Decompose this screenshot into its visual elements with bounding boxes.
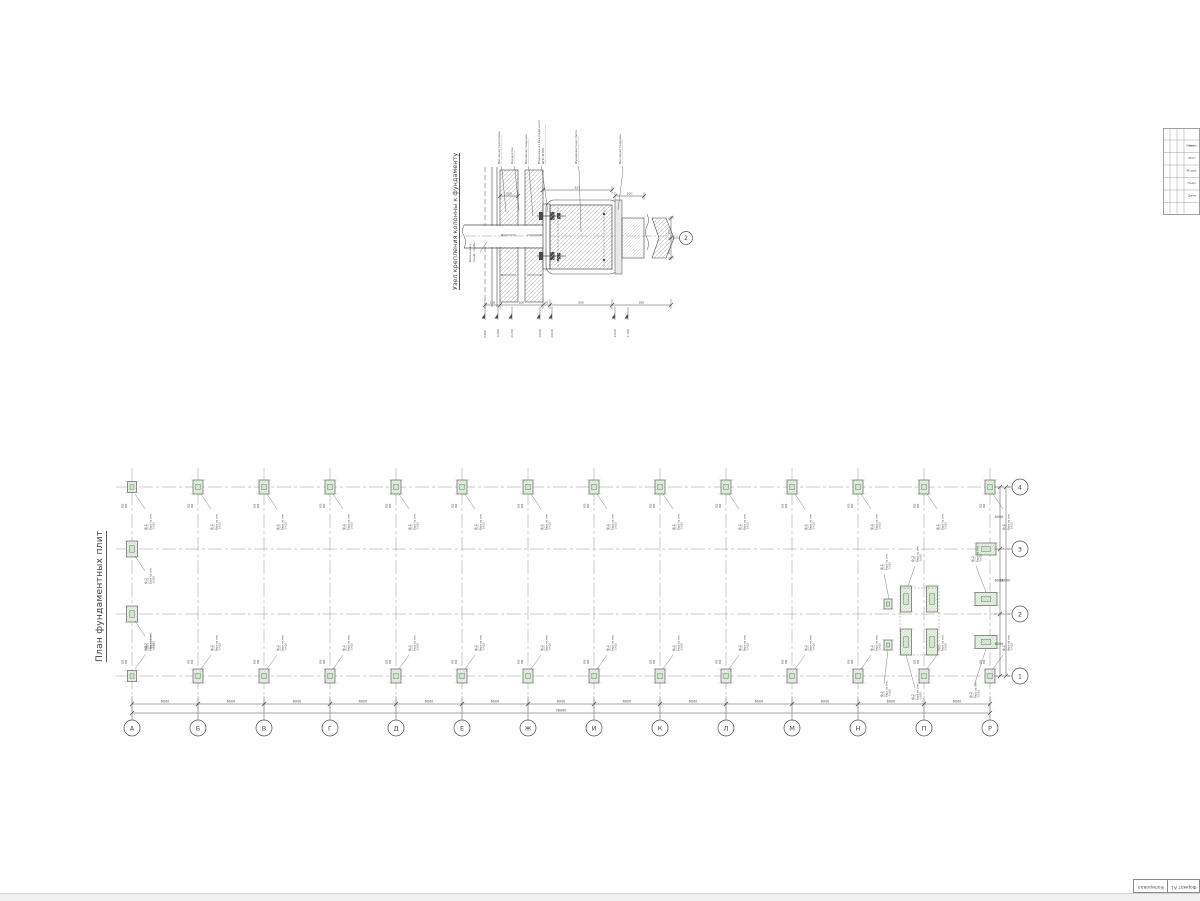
pad-level: -0.620 bbox=[888, 689, 892, 697]
pad-level: -0.620 bbox=[919, 554, 923, 562]
foundation-pad-core bbox=[328, 484, 332, 490]
axis-bubble-label: Б bbox=[196, 724, 200, 732]
axis-bubble-label: Ж bbox=[524, 724, 531, 732]
axis-bubble-label: 1 bbox=[1018, 672, 1022, 680]
dim-text: 6000 bbox=[689, 699, 698, 703]
pad-level: -0.620 bbox=[746, 643, 750, 651]
pad-dim: 950 bbox=[587, 659, 590, 664]
dim-text: 100 bbox=[627, 191, 633, 195]
pad-dim: 950 bbox=[455, 659, 458, 664]
foundation-pad-core bbox=[988, 673, 992, 679]
arrow-dot bbox=[540, 234, 542, 236]
pad-mark: Ф-1 bbox=[474, 645, 478, 651]
leader-line bbox=[795, 494, 805, 509]
foundation-pad-core bbox=[930, 637, 935, 647]
foundation-pad-core bbox=[526, 673, 530, 679]
foundation-pad-core bbox=[930, 594, 935, 604]
pad-level: -0.620 bbox=[1010, 522, 1014, 530]
anchor-point bbox=[557, 213, 559, 215]
pad-mark: Ф-1 bbox=[474, 524, 478, 530]
pad-dim: 950 bbox=[389, 659, 392, 664]
strip-row-label: Лист bbox=[1188, 156, 1196, 160]
pad-mark: Ф-1 bbox=[936, 524, 940, 530]
pad-level: -0.620 bbox=[919, 692, 923, 700]
pad-mark: Ф-1 bbox=[342, 524, 346, 530]
callout-label: Кондуктор bbox=[510, 147, 514, 164]
leader-line bbox=[531, 494, 541, 509]
dim-text: 6000 bbox=[425, 699, 434, 703]
axis-bubble-label: П bbox=[922, 724, 927, 732]
anchor-point bbox=[603, 259, 605, 261]
pad-level: -0.620 bbox=[812, 522, 816, 530]
pad-mark: Ф-1 bbox=[540, 524, 544, 530]
leader-line bbox=[993, 655, 1003, 669]
axis-bubble-label: В bbox=[262, 724, 266, 732]
foundation-pad-core bbox=[790, 673, 794, 679]
foundation-pad-core bbox=[394, 484, 398, 490]
dim-text: 6000 bbox=[755, 699, 764, 703]
pad-mark: Ф-1 bbox=[408, 645, 412, 651]
dim-text: 600 bbox=[578, 300, 584, 304]
dim-text: 6000 bbox=[995, 515, 1004, 519]
foundation-pad-core bbox=[981, 639, 991, 644]
arrow-dot bbox=[501, 234, 503, 236]
pad-level: -0.620 bbox=[350, 643, 354, 651]
arrow-dot bbox=[540, 274, 542, 276]
axis-bubble-label: Д bbox=[393, 724, 398, 732]
foundation-pad-core bbox=[981, 596, 991, 601]
strip-row-label: Подп. bbox=[1187, 181, 1196, 185]
leader-line bbox=[333, 494, 343, 509]
pad-level: -0.620 bbox=[1010, 643, 1014, 651]
dim-text: 6000 bbox=[359, 699, 368, 703]
foundation-pad-core bbox=[856, 673, 860, 679]
pad-mark: Ф-1 bbox=[738, 524, 742, 530]
pad-mark: Ф-1 bbox=[804, 645, 808, 651]
dim-text: 150 bbox=[667, 249, 671, 254]
pad-level: -0.620 bbox=[416, 643, 420, 651]
dim-text: 18000 bbox=[1000, 579, 1011, 583]
axis-bubble-label: 2 bbox=[684, 235, 688, 242]
pad-dim: 950 bbox=[587, 503, 590, 508]
leader-line bbox=[135, 494, 145, 509]
pad-mark: Ф-1 bbox=[606, 524, 610, 530]
dim-text: 150 bbox=[667, 229, 671, 234]
level-flag bbox=[537, 314, 541, 319]
leader-line bbox=[663, 655, 673, 669]
leader-line bbox=[399, 655, 409, 669]
pad-mark: Ф-1 bbox=[276, 524, 280, 530]
pad-level: -0.620 bbox=[284, 643, 288, 651]
axis-bubble-label: 3 bbox=[1018, 545, 1022, 553]
dim-text: 6000 bbox=[227, 699, 236, 703]
leader-line bbox=[861, 655, 871, 669]
pad-level: -0.620 bbox=[416, 522, 420, 530]
pad-level: -0.620 bbox=[482, 643, 486, 651]
foundation-pad-core bbox=[130, 611, 135, 617]
leader-line bbox=[135, 655, 145, 669]
leader-line bbox=[333, 655, 343, 669]
pad-dim: 950 bbox=[719, 659, 722, 664]
pad-mark: Ф-1 bbox=[1002, 524, 1006, 530]
pad-mark: Ф-1 bbox=[804, 524, 808, 530]
axis-bubble-label: 2 bbox=[1018, 610, 1022, 618]
foundation-pad-core bbox=[922, 673, 926, 679]
pad-level: -0.620 bbox=[878, 643, 882, 651]
dim-text: 78000 bbox=[556, 708, 567, 712]
foundation-plan: 950950950950Ф-1Верх на отм.-0.620Ф-1Верх… bbox=[88, 452, 1048, 762]
leader-line bbox=[927, 655, 937, 669]
drawing-sheet: Узел крепления колонны к фундаменту План… bbox=[0, 0, 1200, 893]
foundation-pad-core bbox=[196, 484, 200, 490]
arrow-dot bbox=[501, 274, 503, 276]
pad-mark: Ф-1 bbox=[870, 645, 874, 651]
pad-mark: Ф-1 bbox=[870, 524, 874, 530]
foundation-pad-core bbox=[856, 484, 860, 490]
foundation-pad-core bbox=[658, 484, 662, 490]
break-line bbox=[646, 214, 649, 250]
dim-text: 6000 bbox=[953, 699, 962, 703]
pad-dim: 950 bbox=[125, 659, 128, 664]
dim-text: 6000 bbox=[557, 699, 566, 703]
pad-level: -0.620 bbox=[977, 690, 981, 698]
pad-level: -0.620 bbox=[218, 522, 222, 530]
pad-level: -0.620 bbox=[979, 554, 983, 562]
leader-line bbox=[908, 566, 915, 586]
level-flag bbox=[495, 314, 499, 319]
foundation-pad-core bbox=[988, 484, 992, 490]
pad-level: -0.620 bbox=[482, 522, 486, 530]
leader-line bbox=[861, 494, 871, 509]
bolt-head bbox=[539, 212, 543, 220]
axis-bubble-label: К bbox=[658, 724, 663, 732]
leader-line bbox=[795, 655, 805, 669]
dim-text: 6000 bbox=[821, 699, 830, 703]
leader-line bbox=[729, 494, 739, 509]
pad-dim: 950 bbox=[323, 503, 326, 508]
pad-dim: 950 bbox=[653, 659, 656, 664]
column-foundation-detail: 1501502100625100100600506006000.000-0.10… bbox=[440, 92, 710, 357]
pad-level: -0.620 bbox=[218, 643, 222, 651]
leader-line bbox=[465, 655, 475, 669]
pad-mark: Ф-1 bbox=[408, 524, 412, 530]
leader-line bbox=[884, 650, 888, 684]
axis-bubble-label: Е bbox=[460, 724, 464, 732]
pad-level: -0.620 bbox=[284, 522, 288, 530]
pad-dim: 950 bbox=[719, 503, 722, 508]
level-text: -1.100 bbox=[626, 329, 630, 338]
dim-text: 6000 bbox=[491, 699, 500, 703]
pad-dim: 950 bbox=[653, 503, 656, 508]
pad-dim: 950 bbox=[257, 503, 260, 508]
pad-mark: Ф-2 bbox=[969, 692, 973, 698]
leader-line bbox=[201, 494, 211, 509]
pad-dim: 950 bbox=[917, 659, 920, 664]
dim-text: 6000 bbox=[995, 642, 1004, 646]
pad-mark: Ф-1 bbox=[210, 524, 214, 530]
leader-line bbox=[399, 494, 409, 509]
dim-text: 50 bbox=[545, 300, 549, 304]
leader-line bbox=[663, 494, 673, 509]
pad-dim: 950 bbox=[323, 659, 326, 664]
foundation-pad-core bbox=[904, 594, 909, 604]
pad-dim: 950 bbox=[389, 503, 392, 508]
leader-line bbox=[884, 574, 889, 599]
axis-bubble-label: А bbox=[130, 724, 135, 732]
pad-mark: Ф-1 bbox=[540, 645, 544, 651]
pad-dim: 950 bbox=[191, 659, 194, 664]
foundation-pad-core bbox=[130, 485, 134, 489]
leader-line bbox=[729, 655, 739, 669]
anchor-point bbox=[557, 259, 559, 261]
level-flag bbox=[482, 314, 486, 319]
callout-label: проф. трубы bbox=[472, 242, 476, 262]
bolt-head bbox=[539, 252, 543, 260]
pad-level: -0.620 bbox=[152, 576, 156, 584]
base-plate bbox=[543, 204, 550, 269]
dim-text: 100 bbox=[490, 300, 496, 304]
leader-line bbox=[267, 494, 277, 509]
foundation-pad-core bbox=[196, 673, 200, 679]
pad-level: -0.620 bbox=[548, 522, 552, 530]
leader-line bbox=[135, 556, 145, 571]
pad-level: -0.620 bbox=[614, 643, 618, 651]
axis-bubble-label: Г bbox=[328, 724, 332, 732]
pad-mark: Ф-2 bbox=[144, 643, 148, 649]
foundation-block bbox=[550, 205, 612, 269]
foundation-pad-core bbox=[592, 484, 596, 490]
level-text: -0.640 bbox=[550, 329, 554, 338]
pad-mark: Ф-2 bbox=[144, 578, 148, 584]
foundation-pad-core bbox=[460, 484, 464, 490]
level-text: -0.620 bbox=[538, 329, 542, 338]
pad-mark: Ф-1 bbox=[144, 524, 148, 530]
foundation-pad-core bbox=[724, 484, 728, 490]
foundation-pad-core bbox=[904, 637, 909, 647]
pad-mark: Ф-2 bbox=[911, 694, 915, 700]
corner-stamp-right: Формат А1 bbox=[1167, 879, 1200, 893]
pad-level: -0.620 bbox=[812, 643, 816, 651]
pad-dim: 950 bbox=[851, 659, 854, 664]
level-flag bbox=[625, 314, 629, 319]
pad-dim: 950 bbox=[785, 659, 788, 664]
axis-bubble-label: М bbox=[789, 724, 795, 732]
strip-row-label: № док. bbox=[1187, 168, 1198, 172]
pad-level: -0.620 bbox=[680, 643, 684, 651]
axis-bubble-label: И bbox=[592, 724, 597, 732]
pad-dim: 950 bbox=[125, 503, 128, 508]
pad-level: -0.620 bbox=[944, 522, 948, 530]
foundation-pad-core bbox=[886, 643, 890, 647]
pad-dim: 950 bbox=[521, 503, 524, 508]
dim-text: 6000 bbox=[293, 699, 302, 703]
pad-mark: Ф-1 bbox=[342, 645, 346, 651]
foundation-pad-core bbox=[922, 484, 926, 490]
pad-dim: 950 bbox=[521, 659, 524, 664]
sand-layer bbox=[615, 200, 622, 274]
axis-bubble-label: Н bbox=[856, 724, 861, 732]
axis-bubble-label: Л bbox=[724, 724, 729, 732]
pad-level: -0.620 bbox=[878, 522, 882, 530]
leader-line bbox=[135, 621, 145, 636]
pad-level: -0.620 bbox=[152, 522, 156, 530]
dim-text: 600 bbox=[639, 300, 645, 304]
strip-row-label: Дата bbox=[1188, 193, 1196, 197]
level-text: -0.100 bbox=[496, 329, 500, 338]
pad-dim: 950 bbox=[257, 659, 260, 664]
dim-text: 6000 bbox=[161, 699, 170, 703]
level-flag bbox=[612, 314, 616, 319]
leader-line bbox=[597, 494, 607, 509]
callout-label: Песчаная подушка bbox=[524, 134, 528, 164]
leader-line bbox=[976, 566, 986, 592]
foundation-pad-core bbox=[130, 546, 135, 552]
pad-dim: 950 bbox=[983, 659, 986, 664]
callout-label: ЦПС М300 bbox=[541, 148, 545, 164]
pad-mark: Ф-1 bbox=[672, 645, 676, 651]
callout-label: Фундаментная плита bbox=[574, 130, 578, 164]
anchor-point bbox=[603, 213, 605, 215]
pad-level: -0.620 bbox=[680, 522, 684, 530]
pad-dim: 950 bbox=[191, 503, 194, 508]
pad-level: -0.620 bbox=[548, 643, 552, 651]
pad-dim: 950 bbox=[983, 503, 986, 508]
dim-text: 6000 bbox=[623, 699, 632, 703]
pad-mark: Ф-2 bbox=[911, 556, 915, 562]
pad-dim: 950 bbox=[455, 503, 458, 508]
leader-line bbox=[465, 494, 475, 509]
pad-dim: 950 bbox=[851, 503, 854, 508]
dim-text: 600 bbox=[519, 300, 525, 304]
dim-text: 100 bbox=[506, 191, 512, 195]
foundation-pad-core bbox=[724, 673, 728, 679]
axis-bubble-label: Р bbox=[988, 724, 992, 732]
leader-line bbox=[201, 655, 211, 669]
leader-line bbox=[531, 655, 541, 669]
foundation-pad-core bbox=[130, 674, 134, 678]
level-text: 0.000 bbox=[483, 330, 487, 338]
foundation-pad-core bbox=[982, 547, 991, 552]
leader-line bbox=[993, 494, 1003, 509]
leader-line bbox=[974, 649, 986, 686]
foundation-pad-core bbox=[592, 673, 596, 679]
foundation-pad-core bbox=[262, 673, 266, 679]
callout-label: Песчаная прослойка bbox=[497, 131, 501, 164]
pad-mark: Ф-1 bbox=[606, 645, 610, 651]
leader-line bbox=[597, 655, 607, 669]
foundation-pad-core bbox=[886, 602, 890, 606]
foundation-pad-core bbox=[394, 673, 398, 679]
callout-label: Песчаная подушка bbox=[618, 134, 622, 164]
foundation-pad-core bbox=[658, 673, 662, 679]
pad-mark: Ф-1 bbox=[672, 524, 676, 530]
leader-line bbox=[267, 655, 277, 669]
foundation-pad-core bbox=[328, 673, 332, 679]
pad-mark: Ф-1 bbox=[880, 564, 884, 570]
pad-level: -0.620 bbox=[350, 522, 354, 530]
pad-mark: Ф-1 bbox=[210, 645, 214, 651]
leader-line bbox=[927, 494, 937, 509]
pad-level: -0.620 bbox=[152, 641, 156, 649]
level-flag bbox=[509, 314, 513, 319]
pad-mark: Ф-1 bbox=[738, 645, 742, 651]
pad-dim: 950 bbox=[785, 503, 788, 508]
dim-text: 6000 bbox=[887, 699, 896, 703]
pad-level: -0.620 bbox=[746, 522, 750, 530]
level-text: -1.020 bbox=[613, 329, 617, 338]
pad-mark: Ф-1 bbox=[276, 645, 280, 651]
foundation-pad-core bbox=[460, 673, 464, 679]
corner-stamp-left-label: Копировал bbox=[1138, 884, 1164, 889]
corner-stamp-left: Копировал bbox=[1133, 879, 1168, 893]
level-flag bbox=[549, 314, 553, 319]
pad-mark: Ф-1 bbox=[880, 691, 884, 697]
foundation-pad-core bbox=[790, 484, 794, 490]
corner-stamp-right-label: Формат А1 bbox=[1171, 884, 1197, 889]
foundation-pad-core bbox=[526, 484, 530, 490]
foundation-pad-core bbox=[262, 484, 266, 490]
strip-row-label: Кол.уч. bbox=[1186, 143, 1197, 147]
axis-bubble-label: 4 bbox=[1018, 483, 1022, 491]
pad-level: -0.620 bbox=[614, 522, 618, 530]
bearing-piece bbox=[622, 218, 644, 258]
pad-dim: 950 bbox=[917, 503, 920, 508]
level-text: -0.150 bbox=[510, 329, 514, 338]
pad-level: -0.620 bbox=[888, 562, 892, 570]
title-block-strip: Изм.Кол.уч.Лист№ док.Подп.Дата bbox=[1163, 128, 1200, 215]
pad-level: -0.620 bbox=[944, 643, 948, 651]
pad-mark: Ф-2 bbox=[971, 556, 975, 562]
